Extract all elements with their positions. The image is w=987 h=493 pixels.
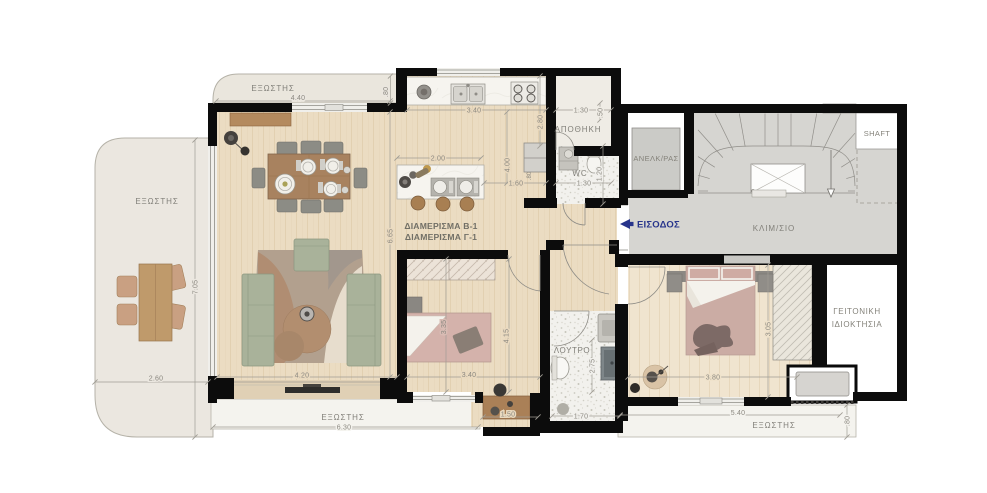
svg-text:1.30: 1.30 (577, 181, 591, 188)
svg-text:1.50: 1.50 (501, 412, 515, 419)
svg-text:ΚΛΙΜ/ΣΙΟ: ΚΛΙΜ/ΣΙΟ (753, 224, 795, 233)
svg-text:4.40: 4.40 (291, 95, 305, 102)
svg-text:ΕΞΩΣΤΗΣ: ΕΞΩΣΤΗΣ (321, 413, 364, 422)
svg-text:ΑΠΟΘΗΚΗ: ΑΠΟΘΗΚΗ (555, 125, 602, 134)
svg-text:ΔΙΑΜΕΡΙΣΜΑ Β-1: ΔΙΑΜΕΡΙΣΜΑ Β-1 (404, 221, 477, 231)
svg-text:ΑΝΕΛΚ/ΡΑΣ: ΑΝΕΛΚ/ΡΑΣ (633, 154, 678, 163)
svg-text:.50: .50 (598, 108, 605, 118)
svg-text:4.20: 4.20 (295, 373, 309, 380)
svg-text:3.05: 3.05 (766, 322, 773, 336)
svg-text:3.35: 3.35 (441, 320, 448, 334)
svg-text:6.65: 6.65 (388, 229, 395, 243)
svg-text:2.75: 2.75 (590, 359, 597, 373)
svg-text:.80: .80 (527, 171, 533, 180)
svg-text:ΕΙΣΟΔΟΣ: ΕΙΣΟΔΟΣ (637, 220, 680, 231)
svg-text:SHAFT: SHAFT (864, 129, 891, 138)
svg-text:3.40: 3.40 (462, 372, 476, 379)
svg-text:1.20: 1.20 (597, 167, 604, 181)
svg-text:2.00: 2.00 (431, 156, 445, 163)
svg-text:WC: WC (572, 169, 587, 178)
svg-text:1.60: 1.60 (509, 181, 523, 188)
svg-text:4.15: 4.15 (504, 329, 511, 343)
svg-text:1.70: 1.70 (574, 414, 588, 421)
svg-text:1.30: 1.30 (574, 108, 588, 115)
svg-text:ΙΔΙΟΚΤΗΣΙΑ: ΙΔΙΟΚΤΗΣΙΑ (832, 320, 883, 329)
svg-text:3.80: 3.80 (706, 375, 720, 382)
svg-text:4.00: 4.00 (505, 158, 512, 172)
svg-text:ΕΞΩΣΤΗΣ: ΕΞΩΣΤΗΣ (251, 84, 294, 93)
svg-text:6.30: 6.30 (337, 425, 351, 432)
svg-text:5.40: 5.40 (731, 410, 745, 417)
svg-text:ΔΙΑΜΕΡΙΣΜΑ Γ-1: ΔΙΑΜΕΡΙΣΜΑ Γ-1 (405, 232, 477, 242)
svg-text:ΕΞΩΣΤΗΣ: ΕΞΩΣΤΗΣ (135, 197, 178, 206)
svg-text:3.40: 3.40 (467, 108, 481, 115)
svg-text:ΕΞΩΣΤΗΣ: ΕΞΩΣΤΗΣ (752, 421, 795, 430)
svg-text:.80: .80 (845, 416, 852, 426)
svg-text:ΛΟΥΤΡΟ: ΛΟΥΤΡΟ (554, 346, 591, 355)
svg-text:2.60: 2.60 (149, 376, 163, 383)
svg-text:.80: .80 (383, 87, 390, 97)
svg-text:7.05: 7.05 (193, 280, 200, 294)
svg-text:ΓΕΙΤΟΝΙΚΗ: ΓΕΙΤΟΝΙΚΗ (833, 307, 880, 316)
svg-text:2.80: 2.80 (538, 115, 545, 129)
